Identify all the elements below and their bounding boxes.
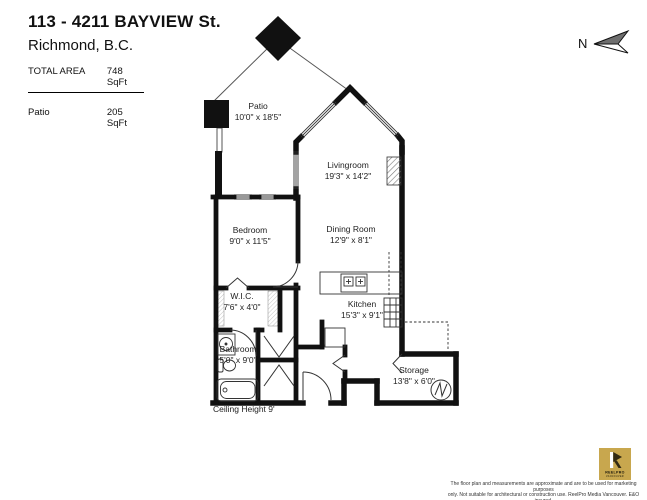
room-name: Dining Room [326,224,375,235]
logo-brand-text: REELPRO [605,471,624,475]
room-dims: 10'0" x 18'5" [235,112,282,123]
ceiling-height-note: Ceiling Height 9' [213,404,275,414]
room-name: Bedroom [229,225,270,236]
reelpro-logo: REELPRO VANCOUVER [598,447,632,481]
room-name: Storage [393,365,435,376]
room-label-wic: W.I.C. 7'6" x 4'0" [223,291,260,312]
room-dims: 19'3" x 14'2" [325,171,372,182]
room-name: Bathroom [219,344,256,355]
patio-side-wall [215,151,222,197]
room-label-bathroom: Bathroom 5'0" x 9'0" [219,344,256,365]
logo-r-stem [610,452,613,468]
room-dims: 13'8" x 6'0" [393,376,435,387]
room-dims: 7'6" x 4'0" [223,302,260,313]
patio-structure [214,45,348,152]
room-dims: 12'9" x 8'1" [326,235,375,246]
patio-column-square [204,100,229,128]
room-label-patio: Patio 10'0" x 18'5" [235,101,282,122]
room-name: Kitchen [341,299,383,310]
logo-region-text: VANCOUVER [606,475,624,478]
room-label-dining-room: Dining Room 12'9" x 8'1" [326,224,375,245]
room-dims: 9'0" x 11'5" [229,236,270,247]
kitchen-fixtures [320,252,448,350]
room-name: Livingroom [325,160,372,171]
room-label-storage: Storage 13'8" x 6'0" [393,365,435,386]
disclaimer-line-2: only. Not suitable for architectural or … [440,493,647,500]
room-label-bedroom: Bedroom 9'0" x 11'5" [229,225,270,246]
room-dims: 15'3" x 9'1" [341,310,383,321]
floorplan-drawing [0,0,647,500]
room-dims: 5'0" x 9'0" [219,355,256,366]
room-name: W.I.C. [223,291,260,302]
disclaimer-text: The floor plan and measurements are appr… [440,482,647,500]
fireplace [387,157,401,185]
room-name: Patio [235,101,282,112]
room-label-kitchen: Kitchen 15'3" x 9'1" [341,299,383,320]
floorplan-page: 113 - 4211 BAYVIEW St. Richmond, B.C. TO… [0,0,647,500]
room-label-livingroom: Livingroom 19'3" x 14'2" [325,160,372,181]
